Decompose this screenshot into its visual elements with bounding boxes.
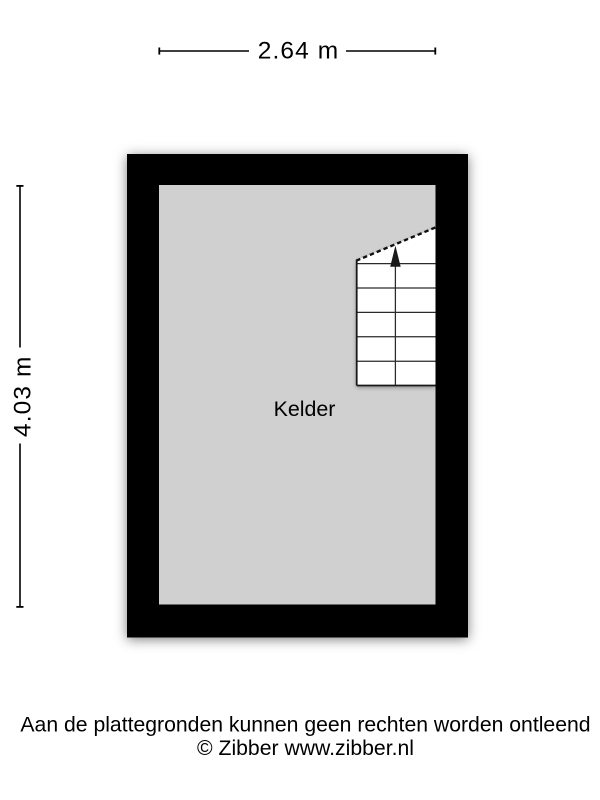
svg-text:4.03 m: 4.03 m [10,355,37,437]
svg-text:© Zibber www.zibber.nl: © Zibber www.zibber.nl [197,737,414,760]
svg-text:2.64 m: 2.64 m [258,38,340,65]
svg-text:Aan de plattegronden kunnen ge: Aan de plattegronden kunnen geen rechten… [20,714,590,737]
svg-text:Kelder: Kelder [274,397,336,421]
